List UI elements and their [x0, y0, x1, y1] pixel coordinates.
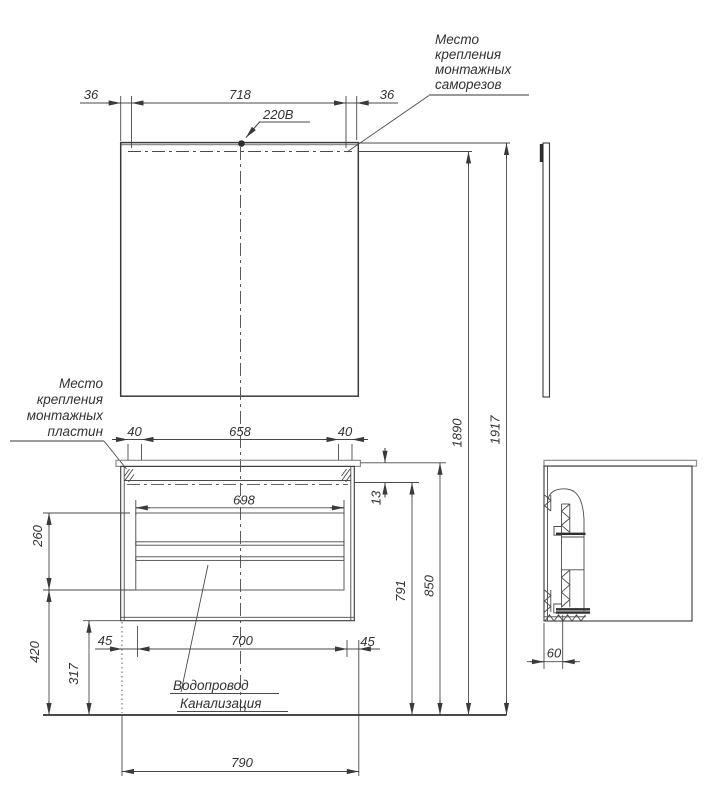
screws-note-line1: Место [435, 32, 479, 47]
dim-plate-offset-left: 40 [127, 424, 142, 439]
dim-mirror-span: 718 [229, 87, 251, 102]
drawing-canvas: 220В 36 718 36 Место крепления монтажных… [0, 0, 706, 804]
plumbing-note-line2: Канализация [180, 696, 261, 711]
slide-hatch-bottom [562, 570, 570, 607]
bottom-hatch-row [545, 615, 586, 621]
installation-drawing: 220В 36 718 36 Место крепления монтажных… [0, 0, 706, 804]
dim-bottom-clearance: 317 [66, 621, 121, 715]
dim-total-width: 790 [122, 715, 359, 776]
plumbing-note-line1: Водопровод [173, 678, 249, 693]
dim-bottom-clearance-label: 317 [66, 662, 81, 684]
countertop-side [544, 460, 697, 466]
dim-top-chain: 36 718 36 [80, 87, 398, 148]
plates-note-line4: пластин [48, 424, 104, 439]
dim-mirror-margin-left: 36 [84, 87, 99, 102]
plates-note: Место крепления монтажных пластин [10, 376, 127, 469]
mirror-front [121, 143, 359, 397]
screws-note-line2: крепления [435, 47, 501, 62]
dim-floor-gap: 420 [27, 640, 42, 662]
dim-top-rail: 13 [354, 448, 446, 505]
side-view: 60 [527, 143, 697, 669]
dim-service-offset-right: 45 [360, 634, 375, 649]
plates-note-line2: крепления [37, 392, 103, 407]
dim-inner-width: 698 [136, 493, 344, 516]
dim-side-depth-label: 60 [547, 646, 562, 661]
power-point-dot [238, 140, 245, 147]
screws-note: Место крепления монтажных саморезов [347, 32, 529, 152]
dim-inner-width-label: 698 [233, 493, 255, 508]
dim-drawer-zone: 260 [30, 524, 45, 547]
plumbing-leader [181, 565, 208, 692]
wall-hatch-top [545, 495, 551, 511]
dim-total-width-label: 790 [231, 755, 253, 770]
slide-hatch-top [562, 504, 570, 532]
dim-cabinet-height: 791 [393, 580, 408, 602]
screws-note-line4: саморезов [435, 77, 502, 92]
dim-plate-offset-right: 40 [338, 424, 353, 439]
dim-plate-chain: 40 658 40 [112, 424, 368, 460]
drawer-hatch-zone [136, 513, 344, 590]
dim-service-offset-left: 45 [98, 633, 113, 648]
plates-note-line3: монтажных [27, 408, 104, 423]
dim-top-rail-label: 13 [369, 490, 384, 505]
mirror-side [543, 143, 550, 397]
dim-plate-span: 658 [229, 424, 251, 439]
front-view: 220В 36 718 36 Место крепления монтажных… [10, 32, 529, 776]
dim-mirror-margin-right: 36 [380, 87, 395, 102]
countertop-front [116, 460, 360, 466]
plumbing-note: Водопровод Канализация [170, 678, 288, 712]
cabinet-front [121, 466, 355, 620]
dim-total-height: 1917 [488, 415, 503, 445]
screws-note-line3: монтажных [435, 62, 512, 77]
dim-mount-height: 1890 [450, 418, 465, 448]
power-label: 220В [262, 107, 294, 122]
dim-counter-height: 850 [422, 574, 437, 596]
dim-service-span: 700 [231, 633, 253, 648]
plates-note-line1: Место [59, 376, 103, 391]
mirror-bracket [540, 144, 544, 162]
dim-side-depth: 60 [527, 615, 580, 669]
dim-left-column: 260 420 [27, 513, 136, 715]
dim-right-column: 791 850 1890 1917 [393, 143, 507, 715]
